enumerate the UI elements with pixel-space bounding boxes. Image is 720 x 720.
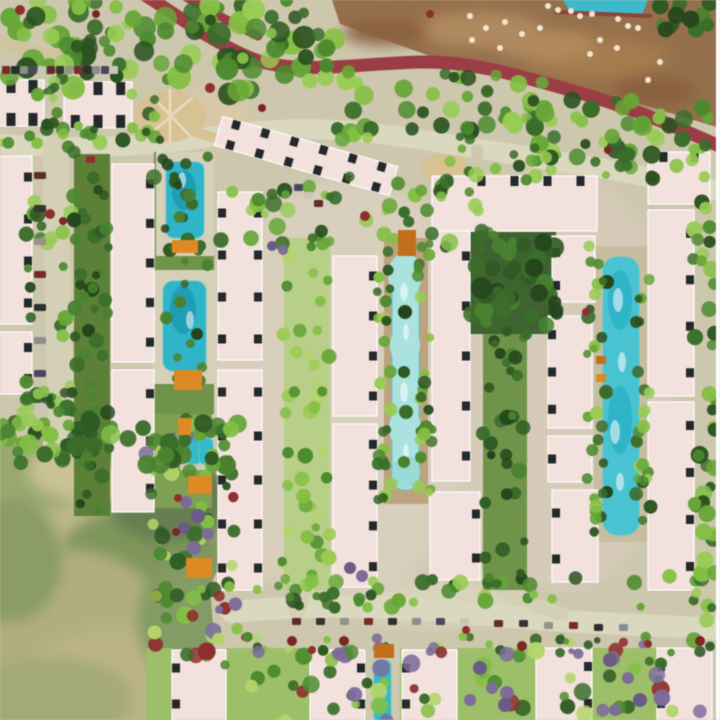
tree [68, 300, 83, 315]
parked-car [83, 66, 91, 74]
tree [71, 40, 84, 53]
cabanas-rect [596, 356, 606, 364]
tree [53, 406, 64, 417]
building-notch [544, 176, 552, 186]
tree [298, 448, 314, 464]
tree [687, 329, 703, 345]
tree [170, 553, 187, 570]
tree [475, 302, 494, 321]
tree [423, 405, 433, 415]
tree [654, 690, 671, 707]
building-roof [648, 402, 694, 590]
parked-car [436, 618, 445, 625]
tree [237, 52, 249, 64]
parked-car [494, 620, 503, 627]
tree [417, 242, 427, 252]
purple-shrubs-dot [622, 672, 634, 684]
parked-car [569, 622, 578, 629]
building-notch [218, 520, 226, 529]
tree [637, 420, 650, 433]
tree [590, 513, 602, 525]
tree [385, 284, 394, 293]
tree [398, 101, 416, 119]
tree [460, 70, 476, 86]
tree [688, 143, 699, 154]
beach-loungers-dot [568, 8, 574, 14]
tree [83, 460, 94, 471]
cabanas-rect [186, 558, 212, 578]
tree [668, 7, 685, 24]
red-shrubs-dot [695, 636, 705, 646]
tree [70, 233, 82, 245]
tree [88, 283, 99, 294]
tree [373, 287, 382, 296]
building-notch [218, 209, 226, 218]
tree [521, 329, 532, 340]
tree [148, 519, 159, 530]
tree [327, 703, 340, 716]
tree [478, 116, 496, 134]
pool-glints-blob [400, 382, 408, 402]
tree [251, 193, 265, 207]
tree [560, 692, 570, 702]
tree [170, 172, 179, 181]
tree [705, 642, 715, 652]
tree [214, 591, 225, 602]
tree [318, 39, 336, 57]
building-notch [254, 293, 262, 302]
tree [285, 593, 294, 602]
sand-patches-blob [495, 30, 595, 60]
tree [674, 131, 690, 147]
tree [485, 640, 493, 648]
red-shrubs-dot [258, 104, 266, 112]
red-shrubs-dot [339, 636, 349, 646]
tree [513, 160, 525, 172]
masterplan-aerial-render [0, 0, 720, 720]
tree [177, 612, 185, 620]
tree [696, 255, 707, 266]
tree [635, 295, 643, 303]
tree [382, 198, 398, 214]
tree [50, 83, 60, 93]
tree [499, 647, 514, 662]
tree [322, 349, 337, 364]
cabanas-rect [172, 240, 198, 253]
tree [157, 22, 174, 39]
tree [26, 312, 36, 322]
tree [135, 420, 151, 436]
tree [520, 537, 528, 545]
tree [59, 262, 68, 271]
pool-palms-dot [599, 385, 613, 399]
tree [94, 506, 103, 515]
tree [332, 648, 345, 661]
tree [20, 375, 34, 389]
tree [594, 637, 601, 644]
pool-palms-dot [399, 405, 413, 419]
tree [526, 154, 539, 167]
tree [388, 233, 400, 245]
tree [226, 186, 238, 198]
beach-loungers-dot [497, 45, 503, 51]
parked-car [460, 618, 469, 625]
tree [636, 458, 649, 471]
tree [445, 156, 456, 167]
red-shrubs-dot [15, 5, 25, 15]
tree [521, 174, 532, 185]
tree [458, 144, 467, 153]
tree [398, 206, 410, 218]
tree [87, 172, 100, 185]
tree [154, 528, 170, 544]
tree [569, 149, 586, 166]
tree [428, 693, 441, 706]
building-notch [369, 481, 377, 490]
building-notch [29, 113, 38, 126]
tree [645, 171, 660, 186]
tree [589, 499, 603, 513]
tree [308, 401, 321, 414]
building-notch [172, 664, 180, 673]
beach-loungers-dot [597, 37, 603, 43]
tree [181, 257, 189, 265]
tree [465, 134, 476, 145]
tree [638, 516, 647, 525]
building-notch [369, 562, 377, 571]
tree [179, 434, 192, 447]
purple-shrubs-dot [267, 241, 277, 251]
tree [694, 646, 705, 657]
tree [693, 450, 705, 462]
tree [283, 525, 293, 535]
tree [409, 598, 418, 607]
red-shrubs-dot [604, 146, 612, 154]
tree [253, 585, 262, 594]
sand-patches-blob [343, 19, 427, 45]
tree [89, 333, 104, 348]
beach-loungers-dot [614, 45, 620, 51]
tree [424, 488, 432, 496]
building-notch [24, 343, 32, 352]
tree [126, 89, 137, 100]
tree [305, 574, 319, 588]
tree [362, 132, 373, 143]
tree [547, 130, 561, 144]
tree [599, 277, 607, 285]
tree [354, 86, 374, 106]
beach-loungers-dot [483, 25, 489, 31]
tree [383, 265, 394, 276]
page-edge [716, 0, 720, 720]
parked-car [34, 370, 46, 377]
tree [37, 221, 47, 231]
tree [643, 146, 661, 164]
tree [596, 420, 608, 432]
tree [317, 386, 327, 396]
tree [104, 243, 113, 252]
tree [307, 242, 316, 251]
tree [615, 100, 631, 116]
parked-car [34, 337, 46, 344]
tree [302, 180, 316, 194]
tree [362, 678, 373, 689]
building-notch [369, 521, 377, 530]
building-notch [462, 352, 470, 361]
building-notch [462, 452, 470, 461]
tree [197, 585, 205, 593]
tree [92, 271, 100, 279]
tree [212, 633, 224, 645]
tree [503, 112, 522, 131]
parked-car [56, 66, 64, 74]
parked-car [65, 66, 73, 74]
tree [243, 230, 259, 246]
tree [530, 143, 540, 153]
parked-car [294, 184, 303, 191]
tree [301, 530, 315, 544]
tree [58, 128, 69, 139]
tree [686, 154, 699, 167]
tree [443, 101, 460, 118]
tree [218, 439, 230, 451]
building-notch [686, 468, 694, 477]
tree [598, 489, 608, 499]
parked-car [34, 271, 46, 278]
tree [280, 202, 296, 218]
parked-car [34, 304, 46, 311]
building-notch [218, 388, 226, 397]
tree [675, 110, 693, 128]
tree [380, 460, 391, 471]
tree [298, 8, 309, 19]
tree [492, 579, 502, 589]
tree [449, 72, 460, 83]
tree [691, 588, 701, 598]
building-notch [218, 251, 226, 260]
building [218, 370, 262, 590]
tree [69, 357, 84, 372]
tree [274, 582, 283, 591]
tree [26, 7, 45, 26]
building-notch [116, 82, 125, 95]
tree [180, 648, 194, 662]
tree [74, 121, 83, 130]
tree [94, 468, 110, 484]
tree [529, 590, 538, 599]
building-notch [146, 389, 154, 398]
tree [511, 463, 527, 479]
tree [162, 159, 174, 171]
tree [228, 525, 241, 538]
tree [384, 477, 397, 490]
tree [153, 55, 169, 71]
tree [412, 480, 425, 493]
tree [70, 331, 80, 341]
tree [410, 684, 419, 693]
pool-glints-blob [616, 473, 624, 491]
tree [345, 172, 355, 182]
building-notch [146, 259, 154, 268]
tree [509, 150, 518, 159]
parked-car [86, 156, 95, 163]
building-notch [218, 293, 226, 302]
tree [384, 403, 397, 416]
parked-car [101, 66, 109, 74]
tree [528, 95, 540, 107]
tree [536, 104, 555, 123]
tree [125, 10, 142, 27]
page-edge-rect [716, 0, 720, 720]
tree [525, 259, 543, 277]
tree [156, 136, 164, 144]
tree [174, 211, 186, 223]
red-shrubs-dot [45, 209, 55, 219]
tree [540, 151, 552, 163]
tree [384, 599, 400, 615]
building [112, 164, 154, 362]
tree [77, 291, 89, 303]
tree [294, 472, 309, 487]
tree [638, 407, 649, 418]
building-notch [218, 564, 226, 573]
tree [291, 346, 303, 358]
tree [362, 602, 373, 613]
tree [75, 280, 85, 290]
tree [416, 392, 427, 403]
tree [574, 683, 592, 701]
tree [582, 100, 600, 118]
tree [313, 326, 323, 336]
tree [418, 428, 431, 441]
tree [637, 603, 645, 611]
tree [293, 324, 306, 337]
beach-loungers-dot [645, 77, 651, 83]
beach-loungers-dot [519, 31, 525, 37]
tree [512, 370, 523, 381]
beach-loungers-dot [589, 11, 595, 17]
pool-glints-blob [618, 352, 626, 372]
tree [500, 686, 514, 700]
tree [381, 316, 391, 326]
red-shrubs-dot [172, 528, 180, 536]
tree [97, 350, 108, 361]
tree [321, 472, 332, 483]
tree [315, 225, 328, 238]
tree [180, 158, 191, 169]
building-notch [94, 82, 103, 95]
building-notch [146, 338, 154, 347]
beach-loungers-dot [467, 13, 473, 19]
parked-car [388, 618, 397, 625]
purple-shrubs-dot [191, 509, 205, 523]
tree [101, 425, 120, 444]
parked-car [38, 66, 46, 74]
tree [282, 447, 293, 458]
tree [56, 329, 69, 342]
tree [644, 387, 655, 398]
tree [501, 488, 513, 500]
tree [216, 58, 239, 81]
tree [508, 351, 522, 365]
tree [426, 240, 434, 248]
tree [296, 489, 311, 504]
building-notch [146, 219, 154, 228]
tree [24, 264, 32, 272]
tree [502, 326, 513, 337]
tree [134, 41, 154, 61]
tree [477, 593, 493, 609]
tree [222, 482, 230, 490]
tree [596, 704, 609, 717]
tree [536, 76, 549, 89]
cabanas-rect [398, 230, 416, 256]
tree [645, 657, 654, 666]
tree [699, 613, 714, 628]
tree [699, 139, 711, 151]
tree [696, 551, 713, 568]
tree [67, 212, 82, 227]
tree [84, 378, 95, 389]
tree [414, 263, 424, 273]
tree [71, 0, 86, 15]
tree [275, 65, 294, 84]
tree [418, 376, 431, 389]
tree [282, 480, 293, 491]
tree [294, 601, 304, 611]
tree [701, 18, 714, 31]
tree [699, 505, 716, 522]
tree [83, 452, 93, 462]
tree [415, 291, 427, 303]
tree [487, 451, 496, 460]
building-notch [254, 432, 262, 441]
building-notch [552, 509, 560, 518]
red-shrubs-dot [205, 83, 215, 93]
tree [479, 552, 491, 564]
tree [100, 405, 115, 420]
tree [695, 523, 712, 540]
tree [150, 95, 159, 104]
red-shrubs-dot [462, 626, 470, 634]
tree [632, 366, 644, 378]
tree [383, 246, 394, 257]
tree [419, 694, 430, 705]
tree [667, 649, 675, 657]
tree [107, 25, 124, 42]
building [333, 424, 377, 587]
building-notch [552, 555, 560, 564]
tree [415, 185, 427, 197]
tree [707, 603, 716, 612]
beach-loungers-dot [635, 25, 641, 31]
beach-loungers-dot [537, 25, 543, 31]
tree [699, 202, 712, 215]
tree [580, 139, 590, 149]
tree [436, 647, 448, 659]
tree [373, 272, 384, 283]
tree [564, 91, 581, 108]
tree [48, 117, 59, 128]
tree [406, 122, 419, 135]
tree [243, 632, 253, 642]
tree [174, 54, 193, 73]
tree [184, 189, 196, 201]
parked-car [544, 622, 553, 629]
pool-glints-blob [400, 283, 408, 301]
tree [476, 426, 490, 440]
tree [462, 91, 473, 102]
